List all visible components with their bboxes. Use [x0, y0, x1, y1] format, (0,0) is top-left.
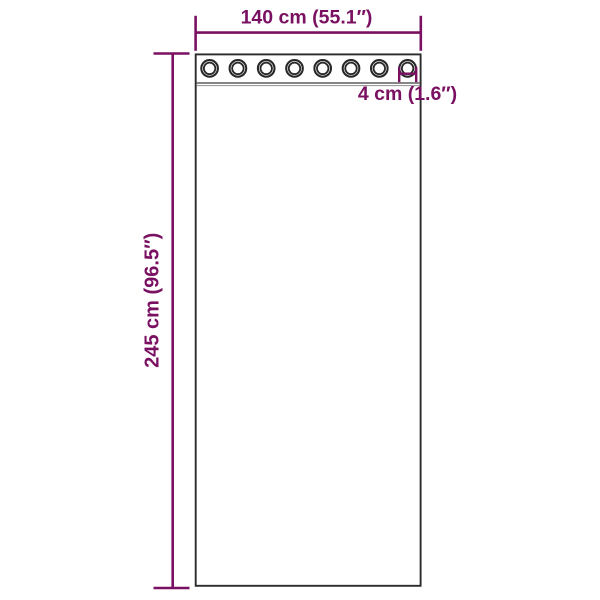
- svg-text:245 cm (96.5″): 245 cm (96.5″): [141, 233, 163, 368]
- svg-text:4 cm (1.6″): 4 cm (1.6″): [358, 83, 457, 105]
- svg-text:140 cm (55.1″): 140 cm (55.1″): [241, 7, 373, 29]
